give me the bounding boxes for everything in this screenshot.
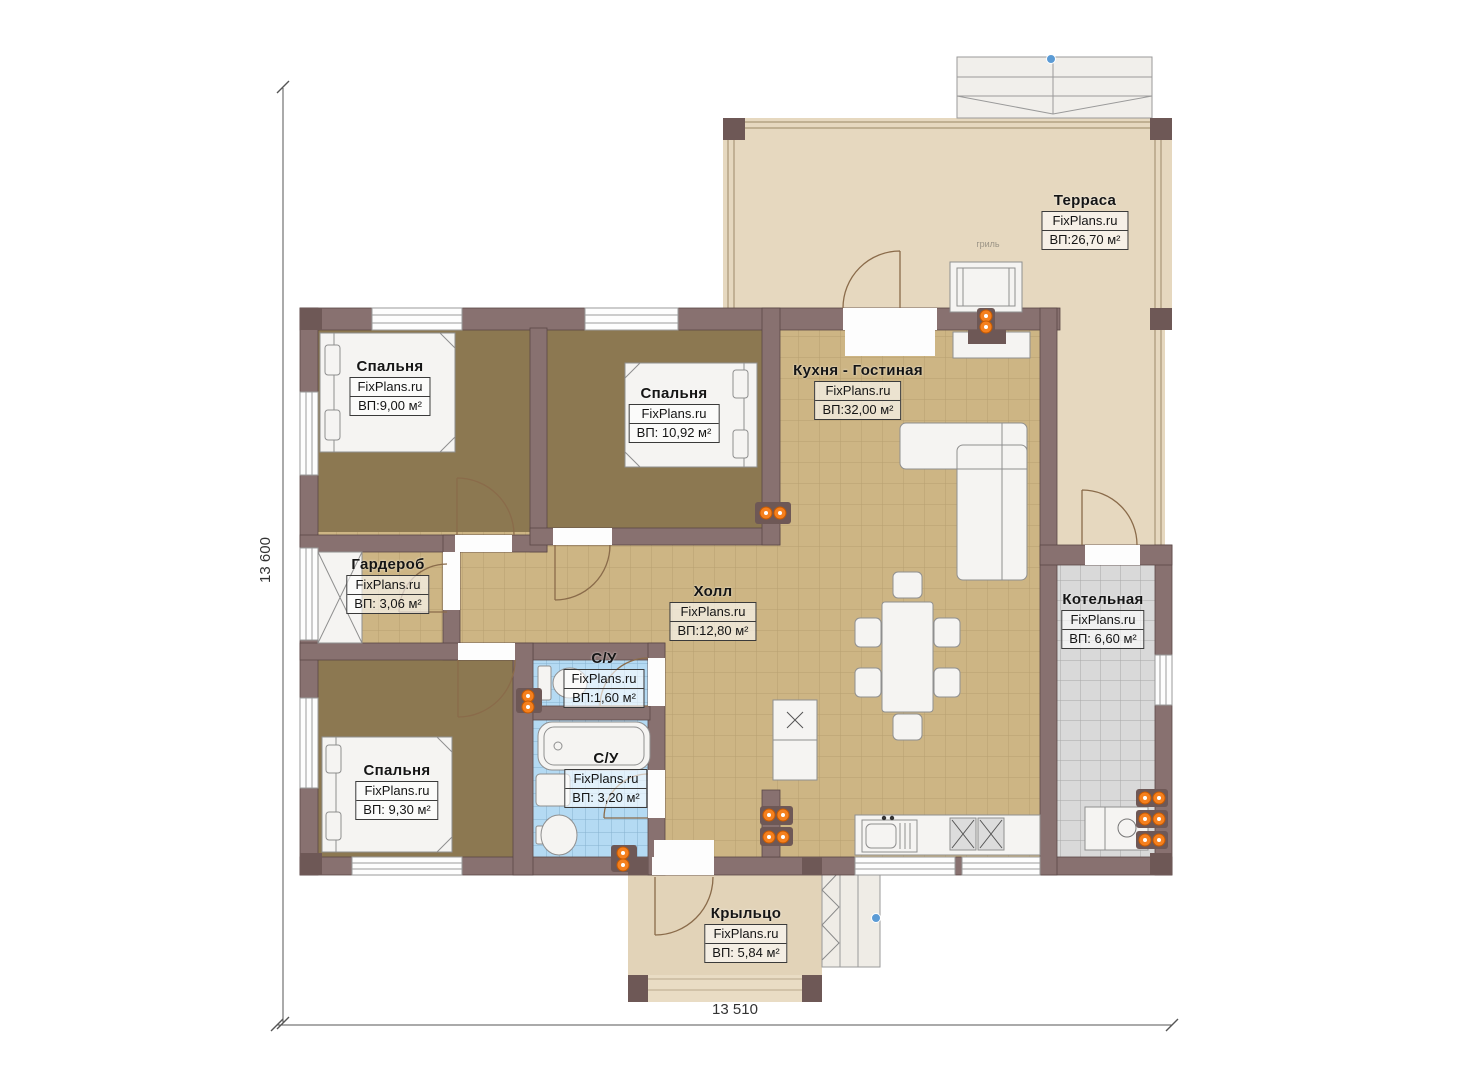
room-label-hall: Холл FixPlans.ru ВП:12,80 м² (669, 583, 756, 641)
room-name: Котельная (1062, 591, 1143, 608)
room-area: ВП: 9,30 м² (356, 800, 437, 819)
room-name: Кухня - Гостиная (793, 362, 923, 379)
window (855, 857, 955, 875)
room-watermark: FixPlans.ru (815, 382, 900, 400)
room-label-porch: Крыльцо FixPlans.ru ВП: 5,84 м² (704, 905, 787, 963)
window (372, 308, 462, 330)
room-watermark: FixPlans.ru (564, 670, 643, 688)
room-name: Терраса (1054, 192, 1116, 209)
room-area: ВП:1,60 м² (564, 688, 643, 707)
room-label-wc-big: С/У FixPlans.ru ВП: 3,20 м² (564, 750, 647, 808)
fridge (773, 700, 817, 780)
room-area: ВП:12,80 м² (670, 621, 755, 640)
room-area: ВП:9,00 м² (350, 396, 429, 415)
room-watermark: FixPlans.ru (670, 603, 755, 621)
room-area: ВП: 10,92 м² (630, 423, 719, 442)
room-name: Холл (694, 583, 733, 600)
room-label-wc-small: С/У FixPlans.ru ВП:1,60 м² (563, 650, 644, 708)
room-watermark: FixPlans.ru (356, 782, 437, 800)
room-label-bedroom-top-middle: Спальня FixPlans.ru ВП: 10,92 м² (629, 385, 720, 443)
room-name: Гардероб (351, 556, 424, 573)
room-watermark: FixPlans.ru (705, 925, 786, 943)
room-area: ВП:26,70 м² (1042, 230, 1127, 249)
room-watermark: FixPlans.ru (1062, 611, 1143, 629)
room-name: С/У (591, 650, 616, 667)
room-area: ВП: 3,20 м² (565, 788, 646, 807)
terrace-steps (957, 55, 1152, 119)
room-label-wardrobe: Гардероб FixPlans.ru ВП: 3,06 м² (346, 556, 429, 614)
room-area: ВП: 3,06 м² (347, 594, 428, 613)
room-area: ВП:32,00 м² (815, 400, 900, 419)
room-area: ВП: 6,60 м² (1062, 629, 1143, 648)
kitchen-counter (855, 815, 1040, 855)
window (300, 548, 318, 640)
window (300, 392, 318, 475)
room-watermark: FixPlans.ru (1042, 212, 1127, 230)
room-watermark: FixPlans.ru (350, 378, 429, 396)
window (300, 698, 318, 788)
room-label-terrace: Терраса FixPlans.ru ВП:26,70 м² (1041, 192, 1128, 250)
room-name: Спальня (641, 385, 708, 402)
grill-annotation: гриль (976, 239, 1000, 249)
room-label-bedroom-bottom: Спальня FixPlans.ru ВП: 9,30 м² (355, 762, 438, 820)
room-name: С/У (593, 750, 618, 767)
window (352, 857, 462, 875)
window (1155, 655, 1172, 705)
window (962, 857, 1040, 875)
room-watermark: FixPlans.ru (347, 576, 428, 594)
dimension-width-label: 13 510 (712, 1001, 758, 1018)
room-watermark: FixPlans.ru (630, 405, 719, 423)
grill (950, 262, 1022, 312)
room-label-kitchen-living: Кухня - Гостиная FixPlans.ru ВП:32,00 м² (793, 362, 923, 420)
room-watermark: FixPlans.ru (565, 770, 646, 788)
room-label-boiler-room: Котельная FixPlans.ru ВП: 6,60 м² (1061, 591, 1144, 649)
room-name: Крыльцо (711, 905, 781, 922)
floor-plan-canvas: 13 600 13 510 гриль Спальня FixPlans.ru … (0, 0, 1474, 1080)
room-name: Спальня (364, 762, 431, 779)
dimension-height-label: 13 600 (257, 537, 274, 583)
room-area: ВП: 5,84 м² (705, 943, 786, 962)
room-name: Спальня (357, 358, 424, 375)
window (585, 308, 678, 330)
room-label-bedroom-top-left: Спальня FixPlans.ru ВП:9,00 м² (349, 358, 430, 416)
